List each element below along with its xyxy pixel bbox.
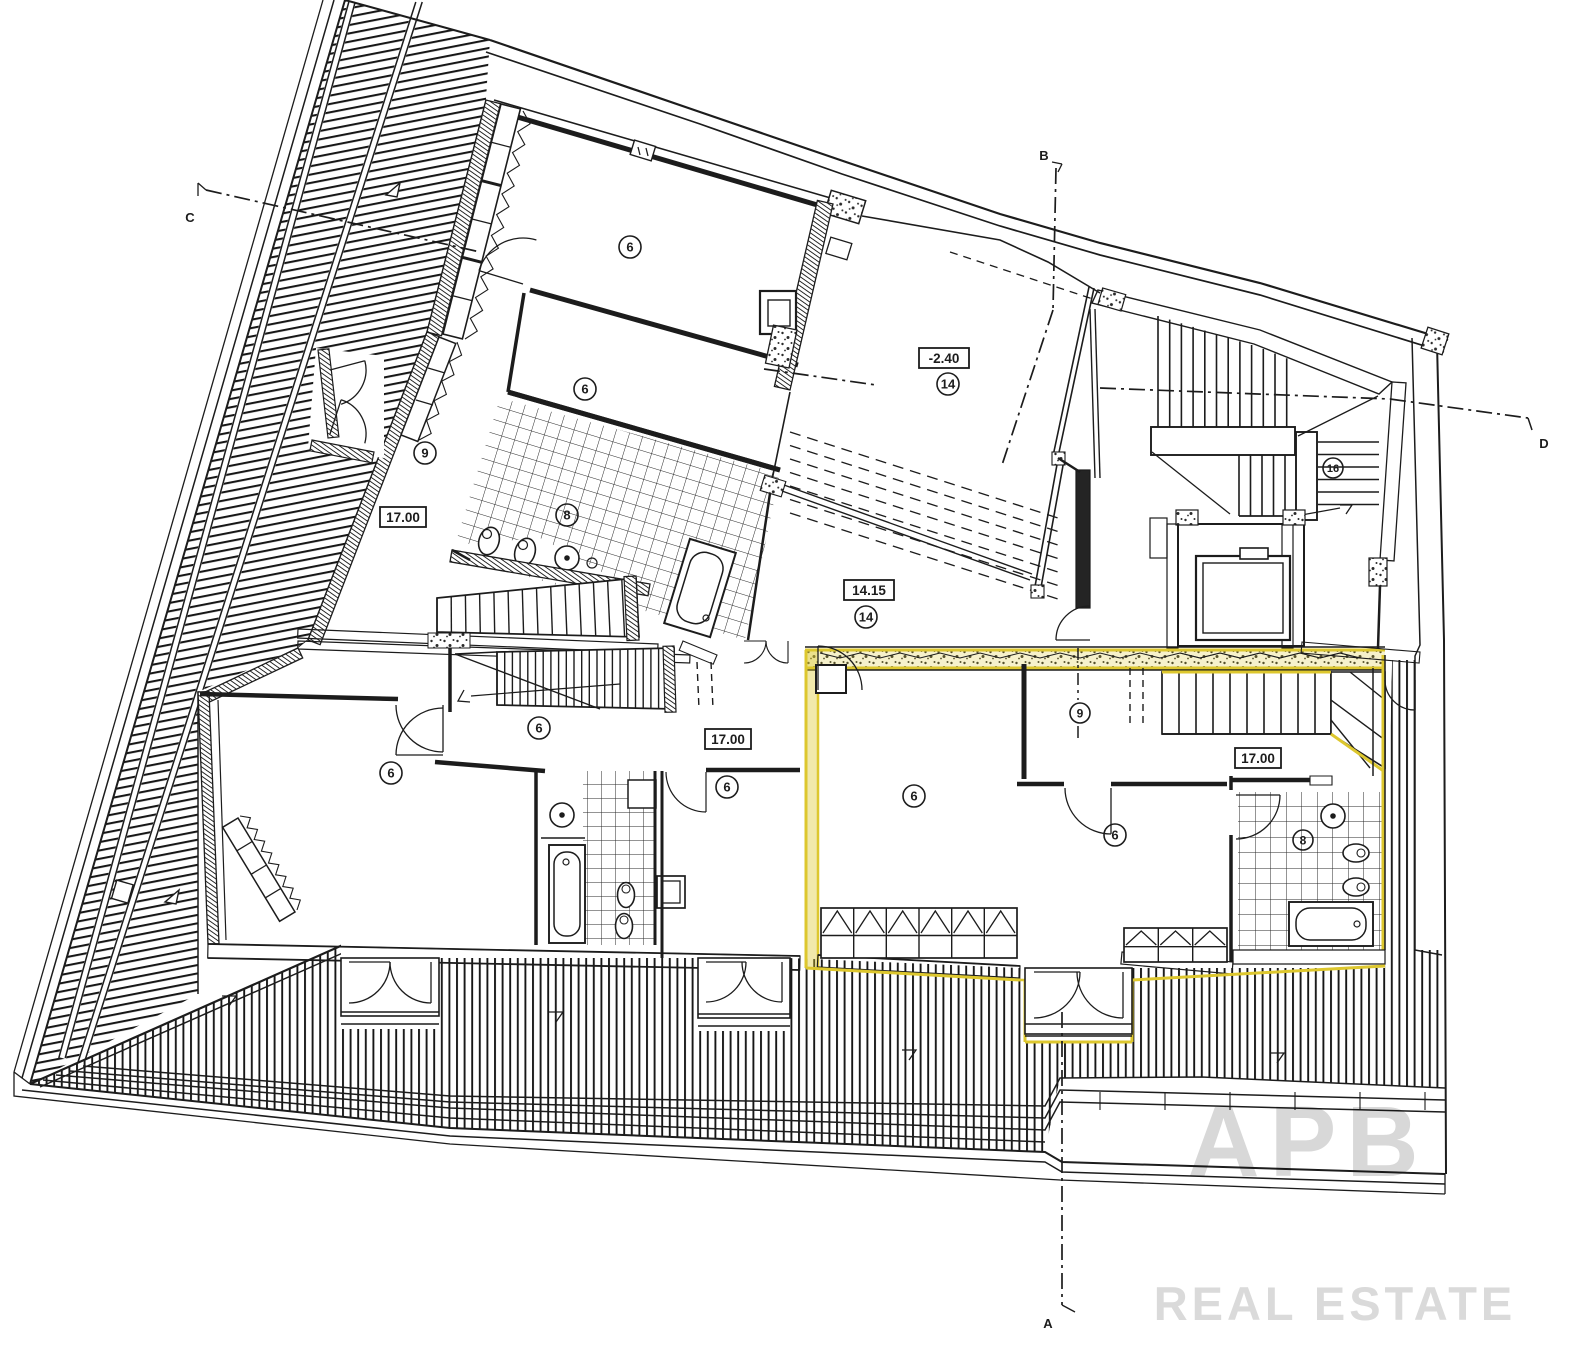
svg-text:A: A	[1043, 1316, 1053, 1331]
svg-text:6: 6	[910, 789, 917, 804]
svg-text:17.00: 17.00	[386, 510, 420, 525]
svg-text:9: 9	[1077, 706, 1084, 720]
svg-text:D: D	[1539, 436, 1548, 451]
svg-text:8: 8	[563, 508, 570, 523]
svg-text:6: 6	[387, 766, 394, 781]
svg-text:9: 9	[421, 446, 428, 461]
svg-text:8: 8	[1300, 833, 1307, 847]
svg-text:6: 6	[535, 721, 542, 736]
svg-text:B: B	[1039, 148, 1048, 163]
svg-text:-2.40: -2.40	[929, 351, 960, 366]
svg-text:14.15: 14.15	[852, 583, 886, 598]
svg-text:REAL ESTATE: REAL ESTATE	[1154, 1277, 1517, 1330]
svg-text:17.00: 17.00	[1241, 751, 1275, 766]
svg-text:17.00: 17.00	[711, 732, 745, 747]
svg-text:6: 6	[626, 240, 633, 255]
svg-text:C: C	[185, 210, 195, 225]
svg-text:6: 6	[581, 382, 588, 397]
svg-text:14: 14	[941, 377, 956, 392]
svg-text:APB: APB	[1187, 1086, 1428, 1198]
svg-text:6: 6	[1111, 828, 1118, 843]
svg-text:14: 14	[859, 610, 874, 625]
svg-text:16: 16	[1327, 463, 1339, 475]
svg-text:6: 6	[723, 780, 730, 795]
